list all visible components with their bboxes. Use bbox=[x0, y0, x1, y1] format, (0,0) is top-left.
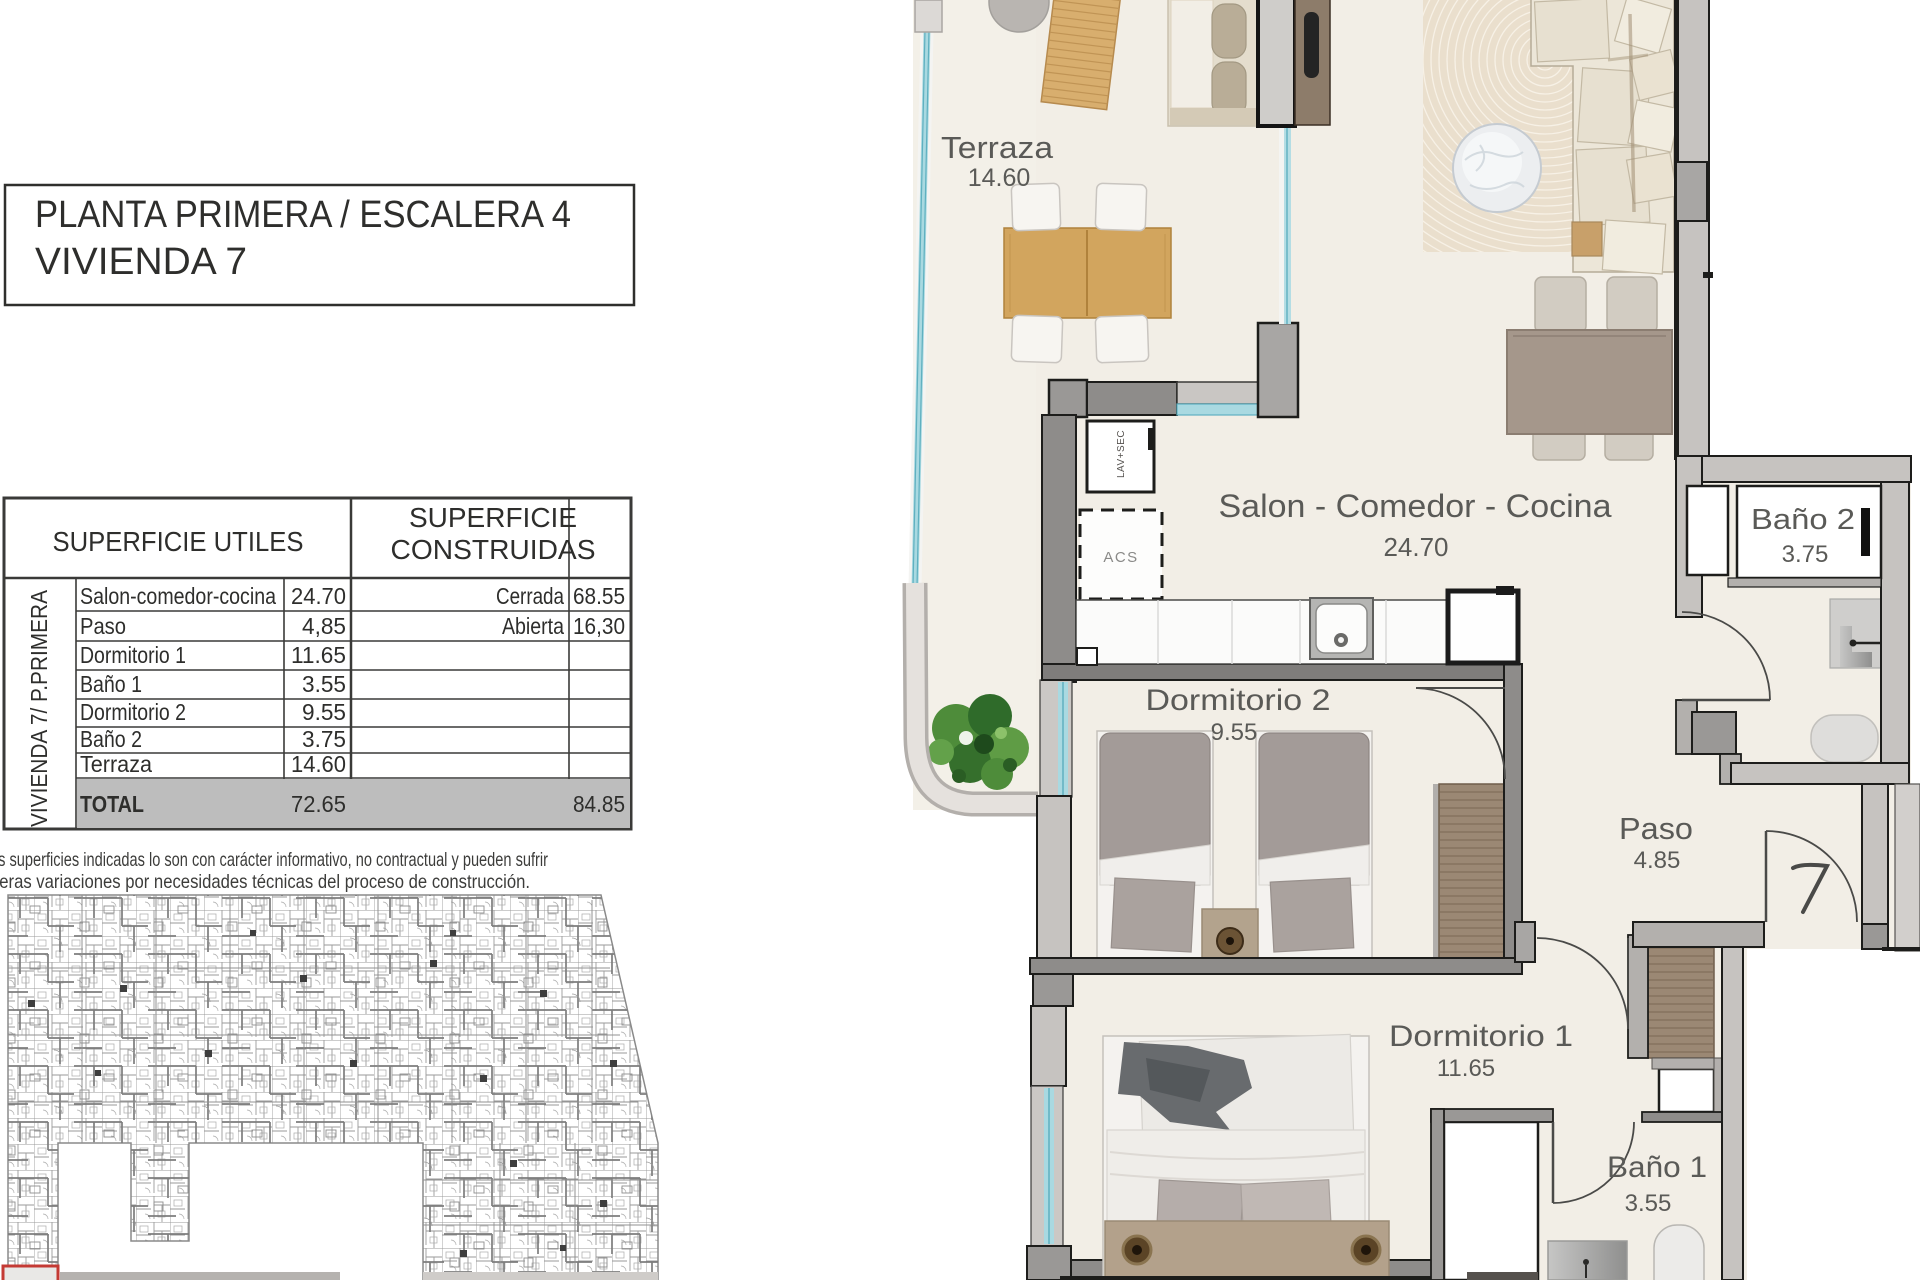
svg-text:Terraza: Terraza bbox=[80, 751, 152, 777]
svg-text:Dormitorio 1: Dormitorio 1 bbox=[1389, 1020, 1573, 1053]
svg-text:14.60: 14.60 bbox=[968, 164, 1031, 192]
svg-text:Baño 1: Baño 1 bbox=[80, 671, 142, 697]
svg-text:VIVIENDA 7/ P.PRIMERA: VIVIENDA 7/ P.PRIMERA bbox=[26, 589, 52, 827]
svg-text:68.55: 68.55 bbox=[573, 583, 625, 609]
svg-text:as superficies indicadas lo so: as superficies indicadas lo son con cará… bbox=[0, 849, 548, 871]
svg-text:SUPERFICIE: SUPERFICIE bbox=[409, 502, 577, 533]
svg-text:Baño 2: Baño 2 bbox=[80, 726, 142, 752]
svg-text:4.85: 4.85 bbox=[1634, 847, 1681, 874]
svg-text:VIVIENDA 7: VIVIENDA 7 bbox=[35, 241, 247, 283]
svg-text:Abierta: Abierta bbox=[502, 613, 564, 639]
svg-text:Terraza: Terraza bbox=[941, 130, 1054, 165]
svg-text:CONSTRUIDAS: CONSTRUIDAS bbox=[391, 534, 596, 565]
svg-text:Dormitorio 2: Dormitorio 2 bbox=[1146, 684, 1331, 717]
svg-text:ACS: ACS bbox=[1103, 549, 1138, 566]
svg-text:geras variaciones por necesida: geras variaciones por necesidades técnic… bbox=[0, 871, 530, 893]
svg-text:3.75: 3.75 bbox=[302, 726, 346, 752]
svg-text:Paso: Paso bbox=[1619, 811, 1693, 846]
svg-text:Baño 2: Baño 2 bbox=[1751, 504, 1855, 536]
svg-text:Dormitorio 1: Dormitorio 1 bbox=[80, 642, 186, 668]
svg-text:84.85: 84.85 bbox=[573, 791, 625, 817]
svg-text:3.55: 3.55 bbox=[302, 671, 346, 697]
svg-text:3.75: 3.75 bbox=[1782, 541, 1829, 568]
svg-text:72.65: 72.65 bbox=[291, 791, 346, 817]
svg-text:Baño 1: Baño 1 bbox=[1607, 1151, 1707, 1184]
svg-text:16,30: 16,30 bbox=[573, 613, 625, 639]
svg-text:14.60: 14.60 bbox=[291, 751, 346, 777]
svg-text:LAV+SEC: LAV+SEC bbox=[1116, 430, 1127, 478]
svg-text:Cerrada: Cerrada bbox=[496, 583, 564, 609]
svg-text:SUPERFICIE UTILES: SUPERFICIE UTILES bbox=[53, 526, 304, 557]
svg-text:Salon - Comedor - Cocina: Salon - Comedor - Cocina bbox=[1219, 488, 1612, 524]
svg-text:Paso: Paso bbox=[80, 613, 126, 639]
svg-text:Dormitorio 2: Dormitorio 2 bbox=[80, 699, 186, 725]
svg-text:4,85: 4,85 bbox=[302, 613, 346, 639]
svg-text:9.55: 9.55 bbox=[1211, 719, 1258, 746]
svg-text:Salon-comedor-cocina: Salon-comedor-cocina bbox=[80, 583, 276, 609]
svg-text:24.70: 24.70 bbox=[1383, 532, 1448, 562]
svg-text:11.65: 11.65 bbox=[291, 642, 346, 668]
svg-text:3.55: 3.55 bbox=[1625, 1190, 1672, 1217]
svg-text:9.55: 9.55 bbox=[302, 699, 346, 725]
svg-text:11.65: 11.65 bbox=[1437, 1055, 1495, 1082]
svg-text:24.70: 24.70 bbox=[291, 583, 346, 609]
svg-text:PLANTA PRIMERA / ESCALERA 4: PLANTA PRIMERA / ESCALERA 4 bbox=[35, 194, 571, 236]
svg-text:TOTAL: TOTAL bbox=[80, 791, 144, 817]
